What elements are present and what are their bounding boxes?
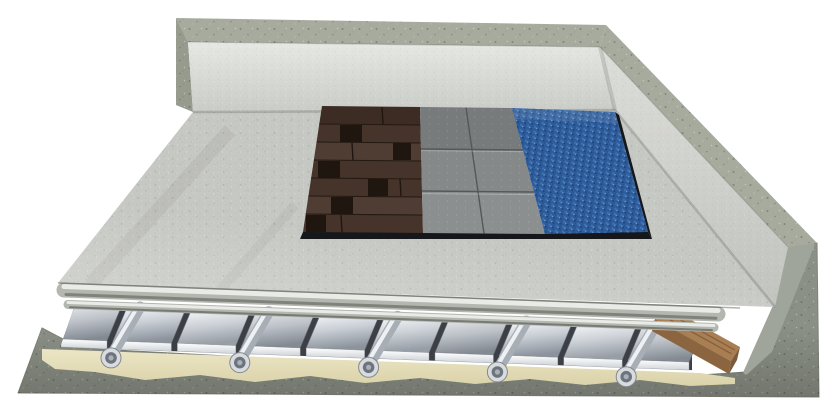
floor-construction-illustration xyxy=(0,0,840,420)
pipe-bore-core xyxy=(495,369,500,374)
wood-plank-light-row xyxy=(306,196,423,215)
wood-plank-sample xyxy=(303,106,423,233)
pipe-bore-core xyxy=(108,355,113,360)
floor-covering-samples xyxy=(300,106,652,239)
heat-plate-top xyxy=(306,317,377,350)
cutaway-scene xyxy=(0,0,840,420)
wood-plank-dark-row xyxy=(319,106,420,125)
pipe-bore-core xyxy=(624,374,629,379)
back-wall-inner-texture xyxy=(188,42,615,112)
pipe-bore-core xyxy=(237,360,242,365)
pipe-bore-core xyxy=(366,365,371,370)
